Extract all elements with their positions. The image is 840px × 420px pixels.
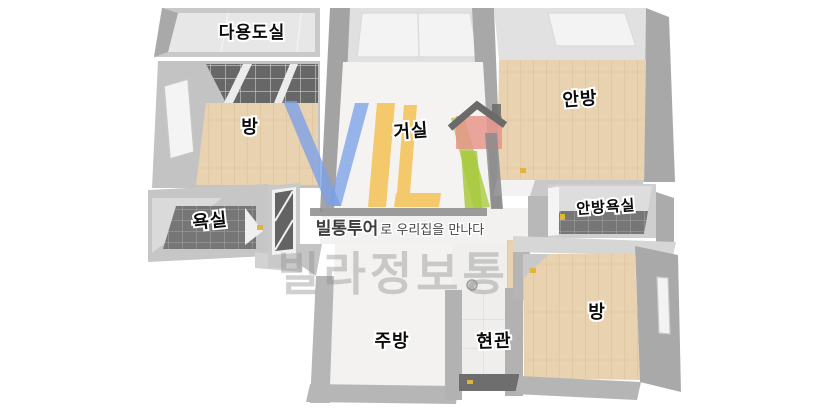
room2-window (657, 277, 670, 334)
kitchen-bottom-wall (306, 384, 458, 404)
master-ceiling-panel (548, 13, 636, 46)
tagline-rest: 로 우리집을 만나다 (380, 223, 484, 238)
partition-glass (275, 190, 293, 251)
tagline-brand: 빌통투어 (316, 219, 379, 239)
label-utility-room: 다용도실 (219, 23, 286, 43)
label-entrance: 현관 (476, 330, 512, 352)
door-seam (418, 13, 419, 57)
logo-letter-l-foot (394, 193, 441, 207)
side-window (164, 79, 194, 159)
label-room-lower-right: 방 (588, 302, 606, 323)
hall-wall-stub (528, 196, 548, 242)
label-master-bedroom: 안방 (562, 88, 599, 111)
watermark-brand-name: 빌라정보통 (277, 247, 509, 301)
door-handle (530, 268, 536, 273)
master-wood-floor (497, 60, 646, 182)
room2-wood-floor (523, 254, 640, 380)
floorplan-canvas: 빌통투어로 우리집을 만나다 빌라정보통 다용도실 방 거실 안방 욕실 안방욕… (0, 0, 840, 420)
label-room-upper-left: 방 (241, 117, 259, 138)
door-handle (560, 214, 565, 220)
label-bathroom: 욕실 (191, 209, 228, 234)
label-kitchen: 주방 (374, 331, 409, 352)
floorplan-image: 빌통투어로 우리집을 만나다 빌라정보통 다용도실 방 거실 안방 욕실 안방욕… (0, 0, 840, 420)
mbath-door-gap (548, 187, 559, 236)
door-handle (467, 380, 473, 384)
label-living-room: 거실 (393, 120, 430, 143)
logo-underline (310, 208, 487, 216)
door-handle (520, 168, 526, 173)
door-handle (257, 225, 263, 230)
